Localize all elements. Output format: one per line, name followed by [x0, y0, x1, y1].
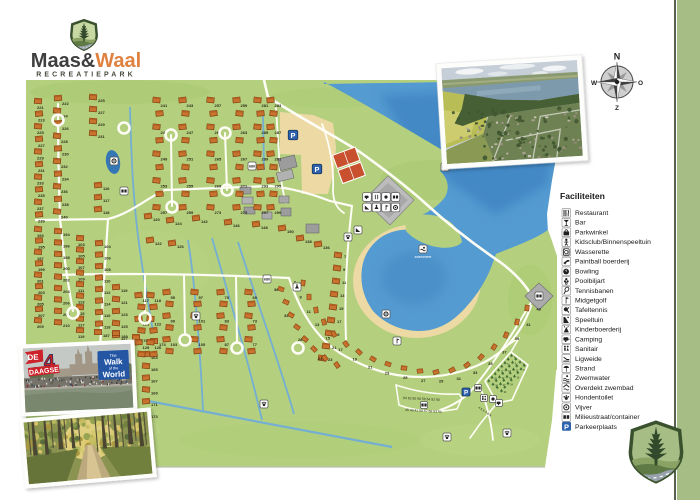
svg-text:123: 123 [121, 312, 128, 317]
svg-text:138: 138 [305, 239, 312, 244]
svg-text:RECREATIEPARK: RECREATIEPARK [36, 72, 136, 79]
svg-text:Tennisbanen: Tennisbanen [575, 288, 614, 295]
svg-text:125: 125 [121, 324, 128, 329]
svg-text:119: 119 [121, 288, 128, 293]
svg-text:39: 39 [515, 336, 520, 341]
svg-text:125: 125 [143, 345, 150, 350]
svg-text:231: 231 [38, 168, 45, 173]
svg-text:146: 146 [233, 223, 240, 228]
svg-text:Hondentoilet: Hondentoilet [575, 395, 613, 402]
svg-text:P: P [315, 165, 320, 174]
svg-text:196: 196 [63, 243, 70, 248]
svg-text:116: 116 [104, 313, 111, 318]
svg-text:202: 202 [63, 278, 70, 283]
svg-text:Vijver: Vijver [575, 404, 593, 411]
svg-text:Overdekt zwembad: Overdekt zwembad [575, 385, 634, 392]
svg-text:31: 31 [457, 376, 462, 381]
svg-text:273: 273 [215, 210, 222, 215]
svg-text:120: 120 [153, 217, 160, 222]
svg-text:Bar: Bar [575, 220, 586, 227]
svg-text:680: 680 [264, 277, 270, 281]
svg-text:221: 221 [37, 105, 44, 110]
svg-text:285: 285 [262, 130, 269, 135]
svg-text:Ligweide: Ligweide [575, 356, 602, 363]
svg-text:P: P [564, 422, 569, 431]
svg-text:29: 29 [439, 379, 444, 384]
svg-text:243: 243 [187, 103, 194, 108]
svg-text:33: 33 [473, 370, 478, 375]
svg-text:228: 228 [61, 139, 68, 144]
svg-text:150: 150 [287, 229, 294, 234]
svg-text:Strand: Strand [575, 366, 595, 373]
svg-text:83: 83 [225, 319, 230, 324]
svg-text:234: 234 [62, 177, 69, 182]
svg-text:DE: DE [27, 353, 39, 363]
svg-text:236: 236 [61, 189, 68, 194]
svg-text:287: 287 [275, 130, 282, 135]
svg-text:41: 41 [526, 322, 531, 327]
svg-text:291: 291 [275, 157, 282, 162]
svg-text:207: 207 [38, 313, 45, 318]
svg-text:87: 87 [225, 342, 230, 347]
svg-text:105: 105 [199, 342, 206, 347]
svg-text:118: 118 [155, 298, 162, 303]
svg-text:124: 124 [175, 221, 182, 226]
svg-text:126: 126 [155, 345, 162, 350]
svg-text:275: 275 [241, 210, 248, 215]
svg-text:199: 199 [38, 267, 45, 272]
svg-text:680: 680 [249, 164, 255, 168]
svg-text:249: 249 [161, 157, 168, 162]
svg-text:111: 111 [78, 288, 85, 293]
svg-text:237: 237 [37, 206, 44, 211]
svg-text:225: 225 [37, 130, 44, 135]
svg-text:Restaurant: Restaurant [575, 210, 608, 217]
svg-text:136: 136 [323, 245, 330, 250]
svg-text:43: 43 [536, 307, 541, 312]
svg-text:122: 122 [155, 322, 162, 327]
svg-text:118: 118 [104, 325, 111, 330]
svg-text:Poolbiljart: Poolbiljart [575, 278, 605, 285]
svg-text:69: 69 [253, 295, 258, 300]
svg-text:23: 23 [385, 371, 390, 376]
svg-text:263: 263 [241, 130, 248, 135]
svg-text:Bowling: Bowling [575, 268, 599, 275]
svg-text:108: 108 [104, 267, 111, 272]
svg-text:113: 113 [78, 300, 85, 305]
svg-text:P: P [464, 390, 468, 397]
svg-text:167: 167 [151, 379, 158, 384]
svg-text:257: 257 [215, 103, 222, 108]
svg-text:17: 17 [337, 319, 342, 324]
svg-text:Tafeltennis: Tafeltennis [575, 307, 608, 314]
svg-text:230: 230 [62, 151, 69, 156]
svg-text:231: 231 [98, 134, 105, 139]
svg-text:165: 165 [151, 367, 158, 372]
svg-text:142: 142 [201, 219, 208, 224]
svg-text:233: 233 [37, 181, 44, 186]
svg-text:117: 117 [78, 323, 85, 328]
svg-text:Wasserette: Wasserette [575, 249, 609, 256]
svg-text:283: 283 [275, 103, 282, 108]
svg-text:15: 15 [326, 336, 331, 341]
svg-text:200: 200 [63, 266, 70, 271]
svg-text:267: 267 [241, 157, 248, 162]
svg-text:265: 265 [215, 157, 222, 162]
svg-text:24: 24 [318, 356, 323, 361]
svg-text:Z: Z [615, 105, 619, 112]
svg-text:35: 35 [488, 361, 493, 366]
svg-text:105: 105 [78, 254, 85, 259]
svg-text:259: 259 [241, 103, 248, 108]
svg-text:107: 107 [78, 265, 85, 270]
svg-text:121: 121 [121, 300, 128, 305]
svg-text:203: 203 [38, 290, 45, 295]
svg-text:226: 226 [62, 126, 69, 131]
svg-text:13: 13 [340, 293, 345, 298]
svg-text:293: 293 [262, 183, 269, 188]
svg-text:235: 235 [38, 193, 45, 198]
svg-text:25: 25 [403, 375, 408, 380]
svg-text:197: 197 [37, 256, 44, 261]
svg-text:187: 187 [103, 333, 110, 338]
svg-text:103: 103 [78, 242, 85, 247]
svg-text:238: 238 [62, 202, 69, 207]
svg-text:World: World [102, 369, 125, 379]
svg-text:19: 19 [353, 356, 358, 361]
svg-text:Faciliteiten: Faciliteiten [560, 191, 605, 201]
svg-text:189: 189 [121, 334, 128, 339]
svg-text:Maas&Waal: Maas&Waal [31, 50, 141, 72]
svg-text:Parkeerplaats: Parkeerplaats [575, 424, 618, 431]
svg-text:253: 253 [161, 183, 168, 188]
svg-text:104: 104 [104, 244, 111, 249]
svg-text:148: 148 [261, 225, 268, 230]
svg-text:194: 194 [63, 232, 70, 237]
svg-text:227: 227 [38, 143, 45, 148]
svg-text:77: 77 [253, 342, 258, 347]
svg-text:27: 27 [421, 378, 426, 383]
svg-text:255: 255 [187, 183, 194, 188]
svg-text:118: 118 [103, 210, 110, 215]
svg-text:229: 229 [37, 155, 44, 160]
svg-text:297: 297 [262, 210, 269, 215]
svg-text:114: 114 [104, 302, 111, 307]
svg-text:206: 206 [63, 300, 70, 305]
svg-text:117: 117 [143, 298, 150, 303]
svg-text:281: 281 [262, 103, 269, 108]
svg-text:241: 241 [161, 103, 168, 108]
svg-text:17: 17 [338, 347, 343, 352]
svg-text:Camping: Camping [575, 336, 602, 343]
svg-text:Milieustraat/container: Milieustraat/container [575, 414, 640, 421]
svg-text:103: 103 [171, 342, 178, 347]
svg-text:204: 204 [63, 289, 70, 294]
svg-text:zwemmeer: zwemmeer [414, 255, 432, 259]
svg-text:193: 193 [37, 233, 44, 238]
svg-text:79: 79 [225, 295, 230, 300]
svg-text:205: 205 [37, 301, 44, 306]
svg-text:99: 99 [171, 319, 176, 324]
svg-text:239: 239 [38, 218, 45, 223]
svg-text:95: 95 [171, 295, 176, 300]
svg-text:36: 36 [274, 287, 279, 292]
svg-text:O: O [638, 80, 643, 87]
svg-text:116: 116 [103, 186, 110, 191]
svg-text:126: 126 [177, 244, 184, 249]
svg-text:P: P [291, 131, 296, 140]
svg-text:295: 295 [275, 183, 282, 188]
svg-text:225: 225 [98, 98, 105, 103]
svg-text:247: 247 [187, 130, 194, 135]
svg-text:Zwemwater: Zwemwater [575, 375, 611, 382]
svg-text:299: 299 [275, 210, 282, 215]
svg-text:Speeltuin: Speeltuin [575, 317, 604, 324]
svg-text:Walk: Walk [104, 357, 123, 367]
svg-text:122: 122 [155, 241, 162, 246]
svg-text:289: 289 [262, 157, 269, 162]
svg-text:195: 195 [38, 244, 45, 249]
svg-text:259: 259 [187, 210, 194, 215]
svg-text:198: 198 [63, 255, 70, 260]
svg-text:201: 201 [37, 279, 44, 284]
svg-text:W: W [591, 80, 598, 87]
svg-text:232: 232 [61, 164, 68, 169]
svg-text:171: 171 [151, 402, 158, 407]
svg-text:240: 240 [61, 214, 68, 219]
svg-text:169: 169 [151, 390, 158, 395]
svg-text:32: 32 [284, 313, 289, 318]
svg-text:222: 222 [62, 101, 69, 106]
svg-text:37: 37 [502, 350, 507, 355]
svg-text:Midgetgolf: Midgetgolf [575, 298, 606, 305]
svg-text:15: 15 [339, 306, 344, 311]
svg-text:173: 173 [151, 414, 158, 419]
svg-text:97: 97 [199, 295, 204, 300]
svg-text:223: 223 [38, 118, 45, 123]
svg-text:21: 21 [368, 365, 373, 370]
svg-text:117: 117 [103, 198, 110, 203]
svg-text:209: 209 [37, 324, 44, 329]
svg-text:251: 251 [187, 157, 194, 162]
svg-text:106: 106 [104, 256, 111, 261]
svg-text:109: 109 [78, 277, 85, 282]
svg-text:21: 21 [332, 345, 337, 350]
svg-text:N: N [614, 52, 621, 62]
svg-text:Kidsclub/Binnenspeeltuin: Kidsclub/Binnenspeeltuin [575, 239, 651, 246]
svg-text:Parkwinkel: Parkwinkel [575, 229, 608, 236]
svg-text:Kinderboerderij: Kinderboerderij [575, 327, 622, 334]
svg-text:23: 23 [328, 357, 333, 362]
svg-text:271: 271 [241, 183, 248, 188]
svg-text:Paintball boerderij: Paintball boerderij [575, 259, 630, 266]
svg-text:227: 227 [98, 110, 105, 115]
svg-text:Sanitair: Sanitair [575, 346, 599, 353]
svg-text:119: 119 [78, 334, 85, 339]
svg-text:210: 210 [63, 323, 70, 328]
svg-text:229: 229 [98, 122, 105, 127]
svg-text:13: 13 [315, 322, 320, 327]
svg-text:110: 110 [104, 279, 111, 284]
svg-text:112: 112 [104, 290, 111, 295]
svg-text:73: 73 [253, 319, 258, 324]
